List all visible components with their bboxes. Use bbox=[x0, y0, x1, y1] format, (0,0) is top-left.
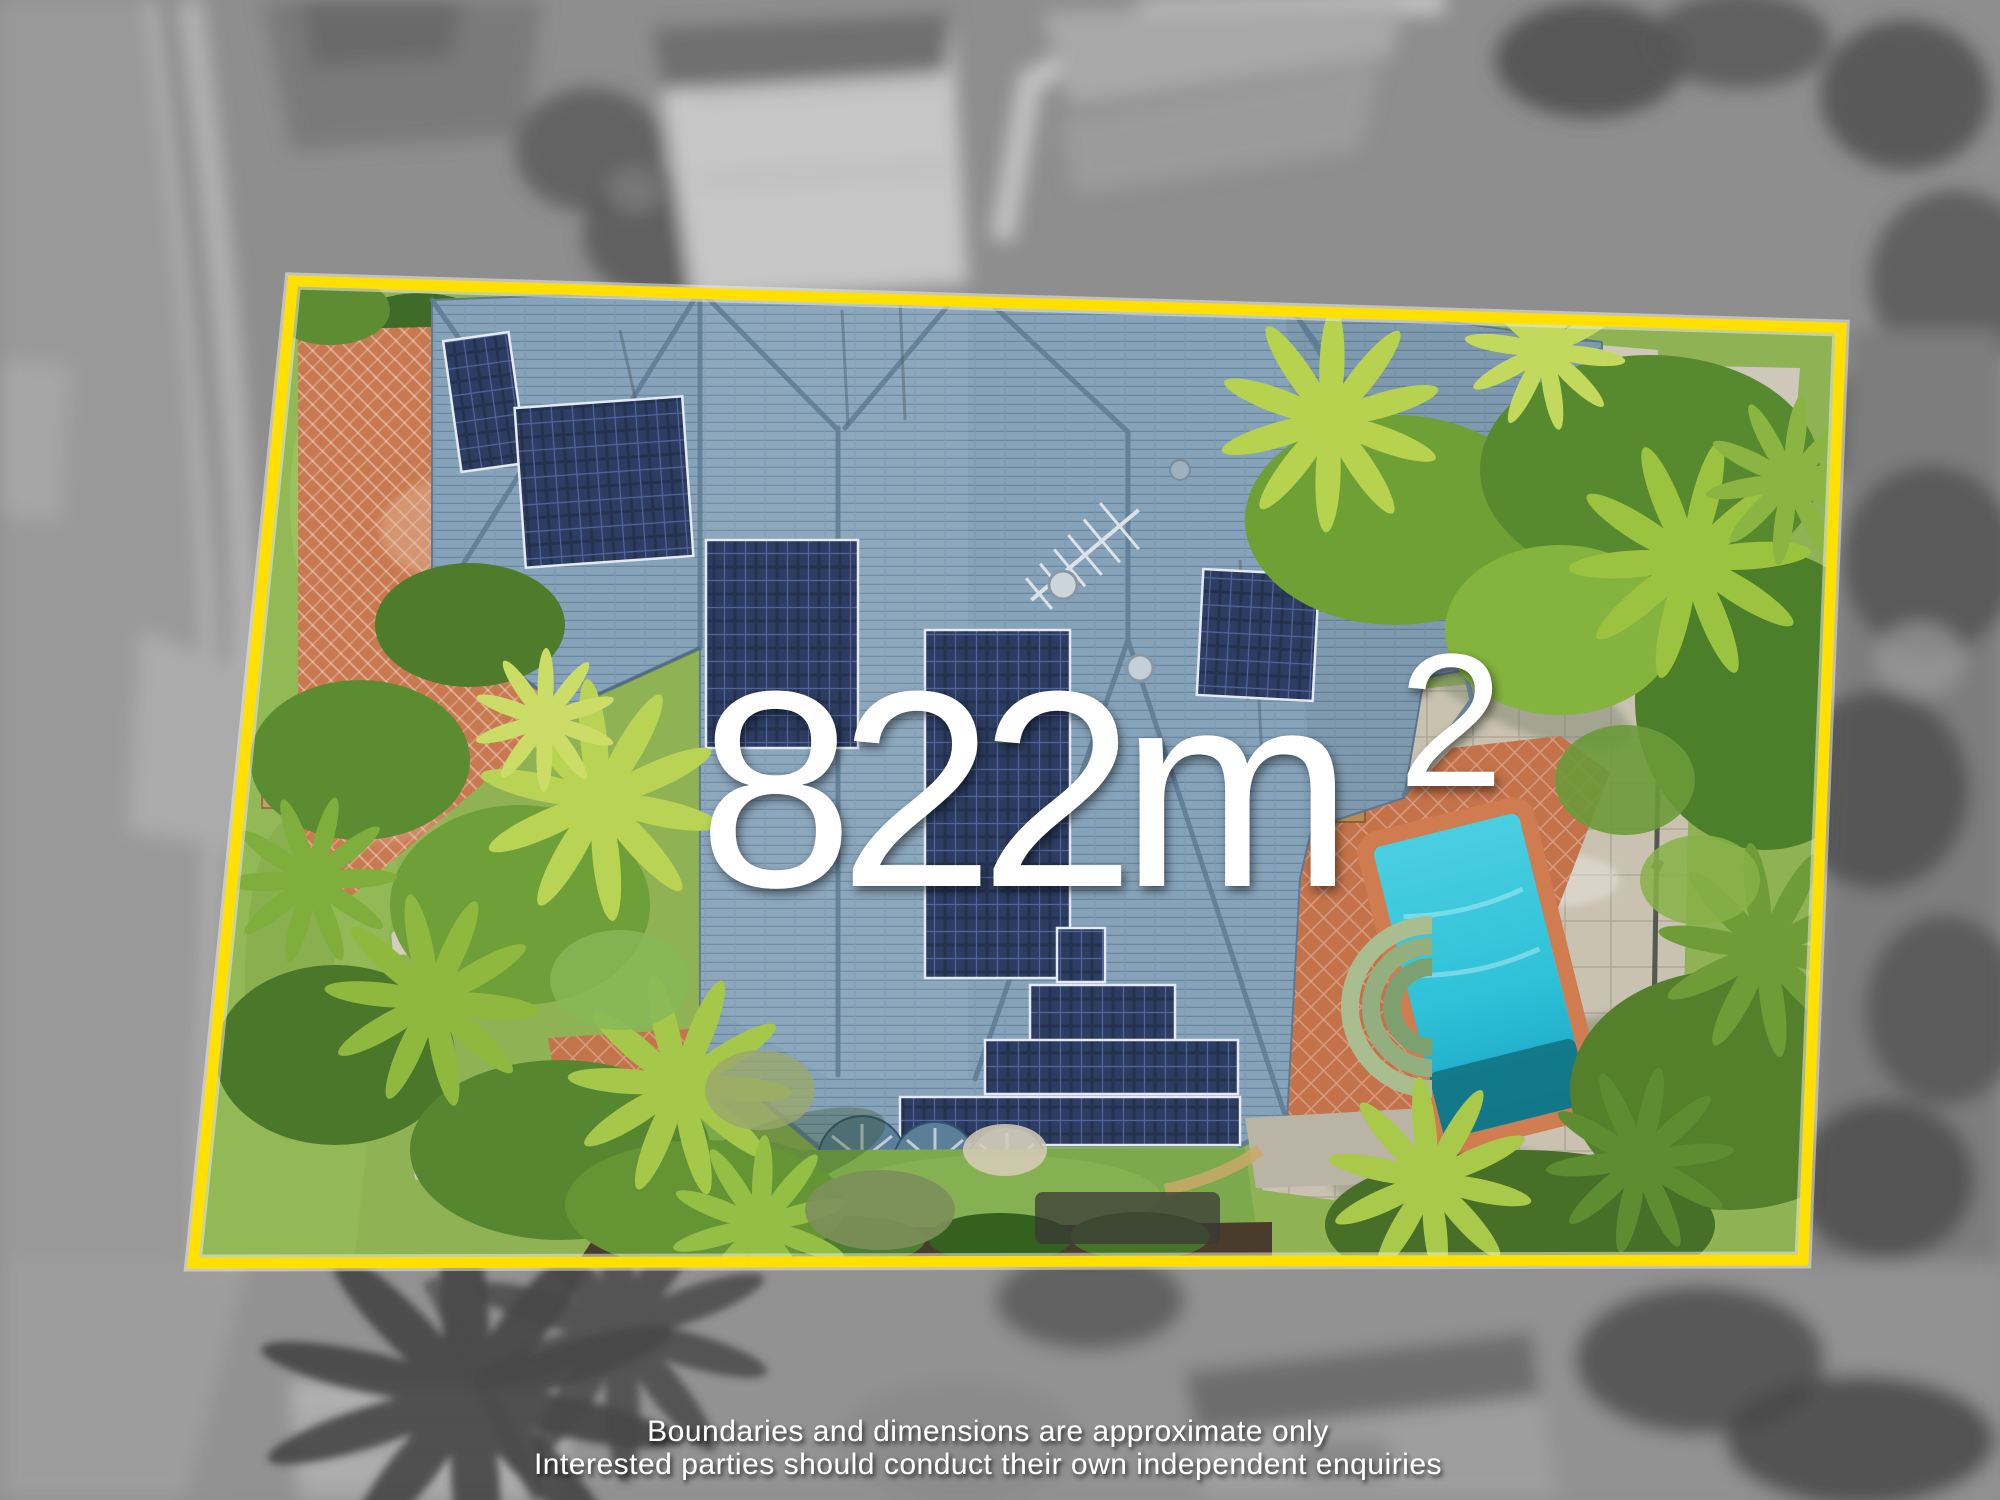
aerial-property-photo: 822m 2 Boundaries and dimensions are app… bbox=[0, 0, 2000, 1500]
aerial-photo-canvas: 822m 2 Boundaries and dimensions are app… bbox=[0, 0, 2000, 1500]
area-exponent: 2 bbox=[1398, 615, 1504, 827]
disclaimer-line2: Interested parties should conduct their … bbox=[534, 1448, 1442, 1481]
outdoor-equipment bbox=[1035, 1192, 1220, 1244]
area-watermark: 822m bbox=[698, 634, 1339, 946]
disclaimer-line1: Boundaries and dimensions are approximat… bbox=[647, 1415, 1329, 1448]
patio-umbrella bbox=[963, 1124, 1047, 1176]
